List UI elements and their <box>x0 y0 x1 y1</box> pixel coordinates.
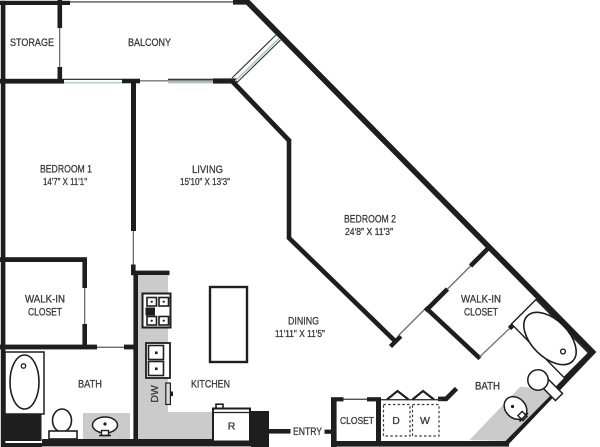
svg-text:14'7" X 11'1": 14'7" X 11'1" <box>43 177 87 188</box>
svg-text:CLOSET: CLOSET <box>340 415 374 427</box>
svg-text:BEDROOM 1: BEDROOM 1 <box>40 164 92 176</box>
svg-text:W: W <box>420 415 430 427</box>
svg-text:24'8" X 11'3": 24'8" X 11'3" <box>345 227 393 238</box>
svg-text:BATH: BATH <box>475 381 500 393</box>
svg-text:R: R <box>228 421 236 433</box>
svg-text:BATH: BATH <box>78 379 102 391</box>
svg-text:WALK-IN: WALK-IN <box>25 294 65 306</box>
svg-text:CLOSET: CLOSET <box>464 307 498 319</box>
svg-text:11'11" X 11'5": 11'11" X 11'5" <box>275 329 325 340</box>
svg-text:WALK-IN: WALK-IN <box>461 294 501 306</box>
svg-text:KITCHEN: KITCHEN <box>191 379 230 391</box>
svg-text:LIVING: LIVING <box>192 164 223 176</box>
svg-text:D: D <box>392 415 400 427</box>
svg-text:BEDROOM 2: BEDROOM 2 <box>344 214 396 226</box>
svg-text:15'10" X 13'3": 15'10" X 13'3" <box>180 177 230 188</box>
svg-text:ENTRY: ENTRY <box>293 426 323 438</box>
svg-text:CLOSET: CLOSET <box>28 307 62 319</box>
svg-text:STORAGE: STORAGE <box>10 37 54 49</box>
svg-text:DINING: DINING <box>288 316 319 328</box>
svg-text:DW: DW <box>149 385 161 403</box>
svg-text:BALCONY: BALCONY <box>128 37 172 49</box>
